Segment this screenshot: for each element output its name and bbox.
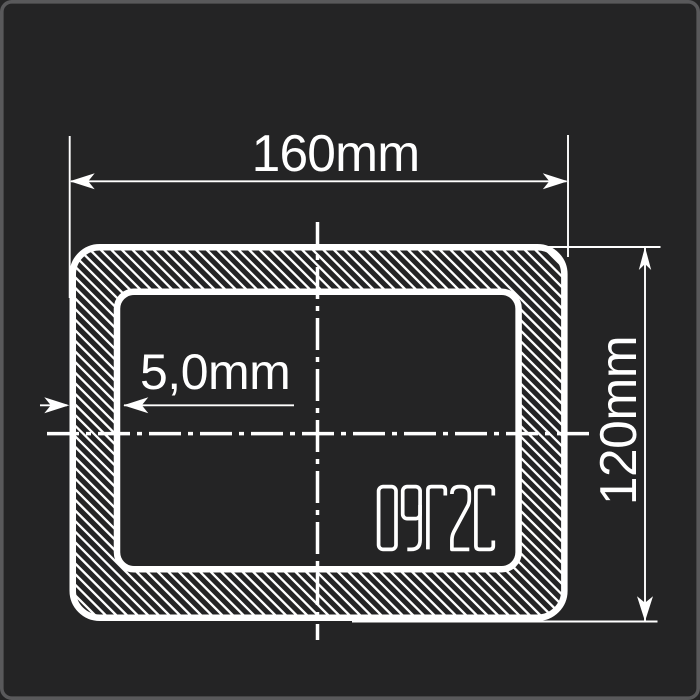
svg-text:120mm: 120mm (589, 336, 647, 505)
svg-text:160mm: 160mm (252, 124, 420, 182)
svg-text:5,0mm: 5,0mm (140, 344, 290, 400)
